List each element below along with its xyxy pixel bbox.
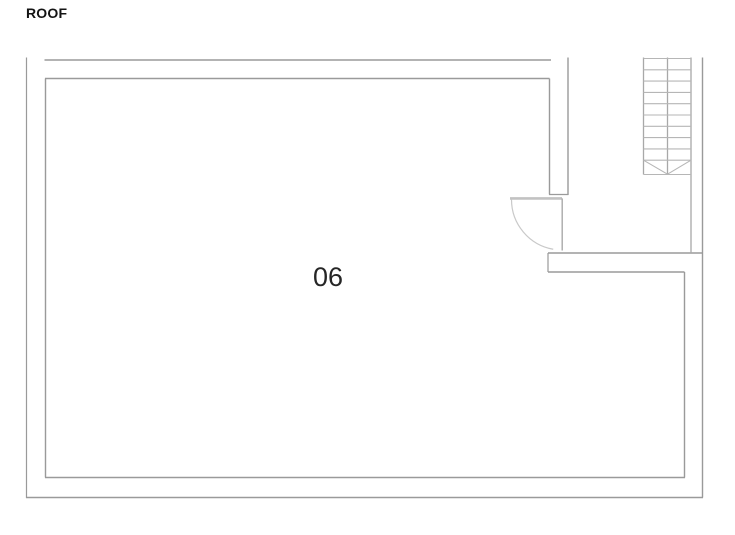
stair-arrow-left bbox=[644, 160, 668, 174]
floorplan-page: { "page": { "title": "ROOF" }, "plan": {… bbox=[0, 0, 735, 535]
stair-arrow-right bbox=[668, 160, 692, 174]
stairs-group bbox=[644, 58, 692, 254]
room-number-label: 06 bbox=[288, 263, 368, 293]
door-group bbox=[510, 198, 562, 250]
door-swing-arc bbox=[512, 200, 554, 250]
